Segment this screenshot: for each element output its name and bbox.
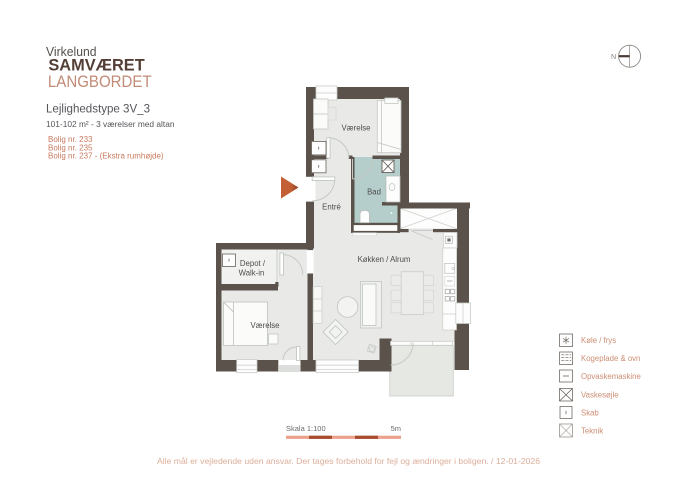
svg-text:Teknik: Teknik [581, 427, 603, 436]
svg-text:Entré: Entré [322, 203, 341, 212]
svg-text:N: N [611, 52, 616, 61]
svg-text:Køkken / Alrum: Køkken / Alrum [358, 255, 411, 264]
svg-text:Kogeplade & ovn: Kogeplade & ovn [581, 354, 640, 363]
svg-text:LANGBORDET: LANGBORDET [48, 73, 152, 91]
svg-text:Walk-in: Walk-in [239, 269, 265, 278]
svg-text:Lejlighedstype 3V_3: Lejlighedstype 3V_3 [46, 101, 150, 115]
svg-text:Værelse: Værelse [250, 321, 279, 330]
svg-text:Bad: Bad [367, 188, 381, 197]
svg-text:Opvaskemaskine: Opvaskemaskine [581, 372, 641, 381]
svg-text:Skala 1:100: Skala 1:100 [286, 424, 326, 433]
svg-text:5m: 5m [391, 424, 401, 433]
svg-text:Skab: Skab [581, 409, 599, 418]
svg-text:Vaskesøjle: Vaskesøjle [581, 391, 619, 400]
svg-text:Depot /: Depot / [240, 259, 266, 268]
svg-text:Værelse: Værelse [341, 124, 370, 133]
svg-text:Alle mål er vejledende uden an: Alle mål er vejledende uden ansvar. Der … [157, 457, 541, 466]
svg-text:Bolig nr. 237 - (Ekstra rumhøj: Bolig nr. 237 - (Ekstra rumhøjde) [48, 152, 164, 161]
svg-text:Køle / frys: Køle / frys [581, 336, 616, 345]
svg-text:101-102 m² - 3 værelser med al: 101-102 m² - 3 værelser med altan [46, 119, 175, 129]
svg-text:SAMVÆRET: SAMVÆRET [48, 57, 144, 75]
